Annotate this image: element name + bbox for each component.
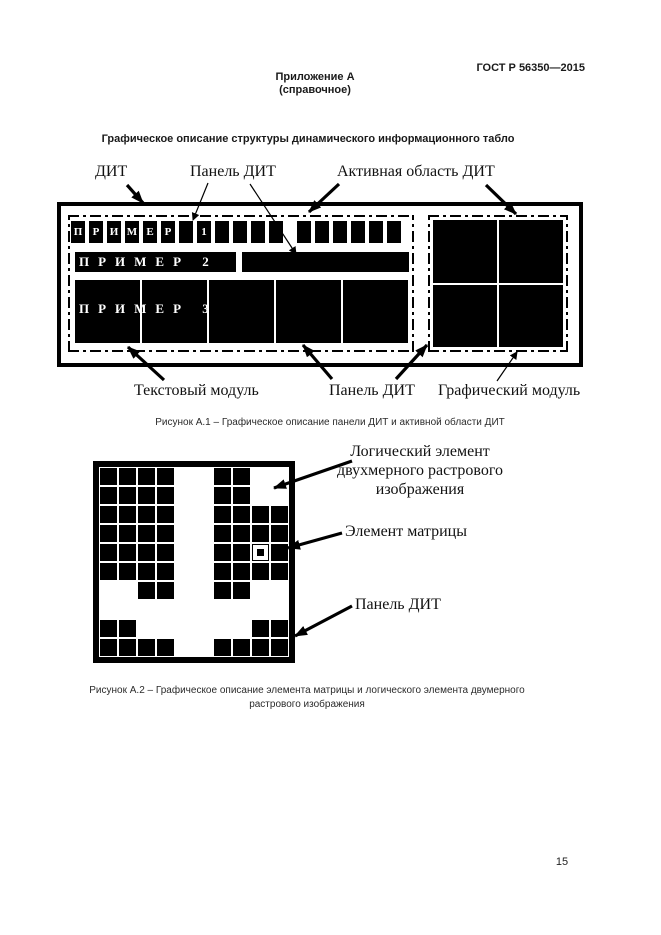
matrix-cell — [195, 639, 212, 656]
text-line: изображения — [330, 480, 510, 499]
matrix-cell — [271, 487, 288, 504]
display-cell — [297, 221, 311, 243]
label-panel-dit-fig2: Панель ДИТ — [355, 596, 441, 614]
row2-segment: ПРИМЕР 2 — [75, 252, 236, 272]
graphic-cell — [433, 285, 497, 348]
matrix-cell — [100, 601, 117, 618]
matrix-cell — [252, 639, 269, 656]
matrix-cell — [119, 506, 136, 523]
matrix-cell — [233, 582, 250, 599]
matrix-cell — [100, 487, 117, 504]
label-matrix-element: Элемент матрицы — [345, 523, 467, 541]
row3-segment — [209, 280, 274, 343]
matrix-cell — [233, 544, 250, 561]
appendix-subtitle: (справочное) — [0, 84, 630, 96]
matrix-cell — [157, 582, 174, 599]
row3-text: ПРИМЕР 3 — [79, 301, 218, 317]
matrix-cell — [157, 525, 174, 542]
matrix-cell — [100, 544, 117, 561]
matrix-cell — [195, 582, 212, 599]
matrix-cell — [195, 487, 212, 504]
display-cell — [215, 221, 229, 243]
matrix-cell — [176, 620, 193, 637]
label-graphic-module: Графический модуль — [438, 382, 580, 400]
figure-a1-caption: Рисунок А.1 – Графическое описание панел… — [20, 417, 640, 428]
matrix-cell — [252, 487, 269, 504]
matrix-cell — [252, 506, 269, 523]
matrix-cell — [195, 620, 212, 637]
matrix-cell — [176, 544, 193, 561]
matrix-cell — [271, 620, 288, 637]
label-logical-element: Логический элементдвухмерного растрового… — [330, 442, 510, 499]
matrix-cell — [271, 525, 288, 542]
matrix-cell — [233, 525, 250, 542]
figure-a2-caption: Рисунок А.2 – Графическое описание элеме… — [0, 684, 614, 712]
matrix-cell — [100, 582, 117, 599]
display-cell — [351, 221, 365, 243]
dit-panel-matrix — [93, 461, 295, 663]
text-module-row1: ПРИМЕР1 — [71, 221, 401, 243]
matrix-cell — [119, 563, 136, 580]
matrix-cell — [157, 639, 174, 656]
matrix-cell — [138, 620, 155, 637]
display-cell: И — [107, 221, 121, 243]
matrix-cell — [195, 468, 212, 485]
document-page: ГОСТ Р 56350—2015 Приложение А (справочн… — [0, 0, 661, 935]
matrix-cell — [176, 601, 193, 618]
label-dit: ДИТ — [95, 163, 127, 181]
label-panel-dit-bottom: Панель ДИТ — [329, 382, 415, 400]
matrix-cell — [214, 487, 231, 504]
page-number: 15 — [540, 856, 584, 868]
matrix-cell — [214, 582, 231, 599]
graphic-module-grid — [433, 220, 563, 347]
matrix-cell — [176, 487, 193, 504]
matrix-cell — [119, 582, 136, 599]
display-cell: П — [71, 221, 85, 243]
label-active-area: Активная область ДИТ — [337, 163, 495, 181]
display-cell: Р — [161, 221, 175, 243]
matrix-cell — [119, 544, 136, 561]
display-cell — [233, 221, 247, 243]
matrix-cell — [138, 563, 155, 580]
graphic-cell — [499, 220, 563, 283]
matrix-cell — [233, 639, 250, 656]
matrix-cell — [157, 506, 174, 523]
matrix-cell — [271, 639, 288, 656]
display-cell — [387, 221, 401, 243]
matrix-cell — [138, 506, 155, 523]
matrix-cell — [233, 487, 250, 504]
matrix-cell — [271, 601, 288, 618]
display-cell: М — [125, 221, 139, 243]
display-cell — [269, 221, 283, 243]
text-module-row3: ПРИМЕР 3 — [75, 280, 408, 343]
matrix-cell — [271, 468, 288, 485]
text-line: двухмерного растрового — [330, 461, 510, 480]
label-panel-dit-top: Панель ДИТ — [190, 163, 276, 181]
matrix-cell — [157, 468, 174, 485]
row1-gap — [283, 221, 297, 243]
matrix-cell — [252, 620, 269, 637]
row2-text: ПРИМЕР 2 — [75, 252, 236, 272]
matrix-cell — [119, 601, 136, 618]
arrow-panel-fig2 — [295, 606, 352, 636]
matrix-cell — [119, 487, 136, 504]
row3-segment — [343, 280, 408, 343]
matrix-element-highlight — [252, 544, 269, 561]
appendix-title: Приложение А — [0, 71, 630, 83]
display-cell — [315, 221, 329, 243]
text-line: Рисунок А.2 – Графическое описание элеме… — [0, 684, 614, 698]
matrix-cell — [157, 620, 174, 637]
display-cell — [179, 221, 193, 243]
graphic-cell — [499, 285, 563, 348]
matrix-cell — [119, 639, 136, 656]
matrix-cell — [271, 544, 288, 561]
arrow-dit — [127, 185, 143, 203]
matrix-cell — [271, 506, 288, 523]
matrix-cell — [138, 601, 155, 618]
display-cell — [369, 221, 383, 243]
matrix-cell — [214, 525, 231, 542]
matrix-cell — [100, 468, 117, 485]
matrix-cell — [252, 563, 269, 580]
matrix-cell — [252, 468, 269, 485]
matrix-cell — [195, 506, 212, 523]
matrix-cell — [119, 525, 136, 542]
matrix-cell — [214, 639, 231, 656]
matrix-cell — [252, 601, 269, 618]
matrix-cell — [100, 506, 117, 523]
matrix-cell — [119, 620, 136, 637]
matrix-cell — [271, 563, 288, 580]
matrix-cell — [157, 544, 174, 561]
matrix-cell — [195, 544, 212, 561]
matrix-cell — [157, 601, 174, 618]
matrix-cell — [176, 582, 193, 599]
matrix-cell — [176, 468, 193, 485]
text-module-row2: ПРИМЕР 2 — [75, 252, 409, 272]
matrix-cell — [195, 601, 212, 618]
matrix-cell — [233, 468, 250, 485]
label-text-module: Текстовый модуль — [134, 382, 259, 400]
matrix-cell — [233, 620, 250, 637]
matrix-cell — [252, 525, 269, 542]
display-cell: Е — [143, 221, 157, 243]
display-cell: Р — [89, 221, 103, 243]
matrix-cell — [233, 563, 250, 580]
graphic-cell — [433, 220, 497, 283]
matrix-cell — [138, 582, 155, 599]
matrix-cell — [271, 582, 288, 599]
matrix-cell — [138, 487, 155, 504]
matrix-cell — [100, 563, 117, 580]
row2-segment — [242, 252, 409, 272]
matrix-cell — [195, 525, 212, 542]
matrix-cell — [100, 639, 117, 656]
matrix-cell — [176, 563, 193, 580]
matrix-cell — [214, 506, 231, 523]
matrix-cell — [119, 468, 136, 485]
matrix-cell — [214, 563, 231, 580]
matrix-cell — [176, 525, 193, 542]
display-cell — [251, 221, 265, 243]
text-line: Логический элемент — [330, 442, 510, 461]
row3-segment — [276, 280, 341, 343]
matrix-cell — [214, 601, 231, 618]
matrix-cell — [214, 544, 231, 561]
display-cell: 1 — [197, 221, 211, 243]
matrix-cell — [100, 620, 117, 637]
dit-board: ПРИМЕР1 ПРИМЕР 2 ПРИМЕР 3 — [57, 202, 583, 367]
display-cell — [333, 221, 347, 243]
matrix-cell — [176, 639, 193, 656]
matrix-cell — [233, 506, 250, 523]
matrix-cell — [138, 544, 155, 561]
matrix-cell — [100, 525, 117, 542]
row1-cell-group-left: ПРИМЕР1 — [71, 221, 283, 243]
matrix-cell — [138, 639, 155, 656]
section-title: Графическое описание структуры динамичес… — [0, 133, 616, 145]
arrow-matrix-element — [288, 533, 342, 548]
matrix-cell — [157, 563, 174, 580]
matrix-cell — [138, 468, 155, 485]
matrix-cell — [138, 525, 155, 542]
matrix-cell — [176, 506, 193, 523]
matrix-cell — [214, 468, 231, 485]
text-line: растрового изображения — [0, 698, 614, 712]
matrix-cell — [233, 601, 250, 618]
row1-cell-group-right — [297, 221, 401, 243]
matrix-cell — [195, 563, 212, 580]
matrix-cell — [252, 582, 269, 599]
matrix-cell — [157, 487, 174, 504]
matrix-cell — [214, 620, 231, 637]
